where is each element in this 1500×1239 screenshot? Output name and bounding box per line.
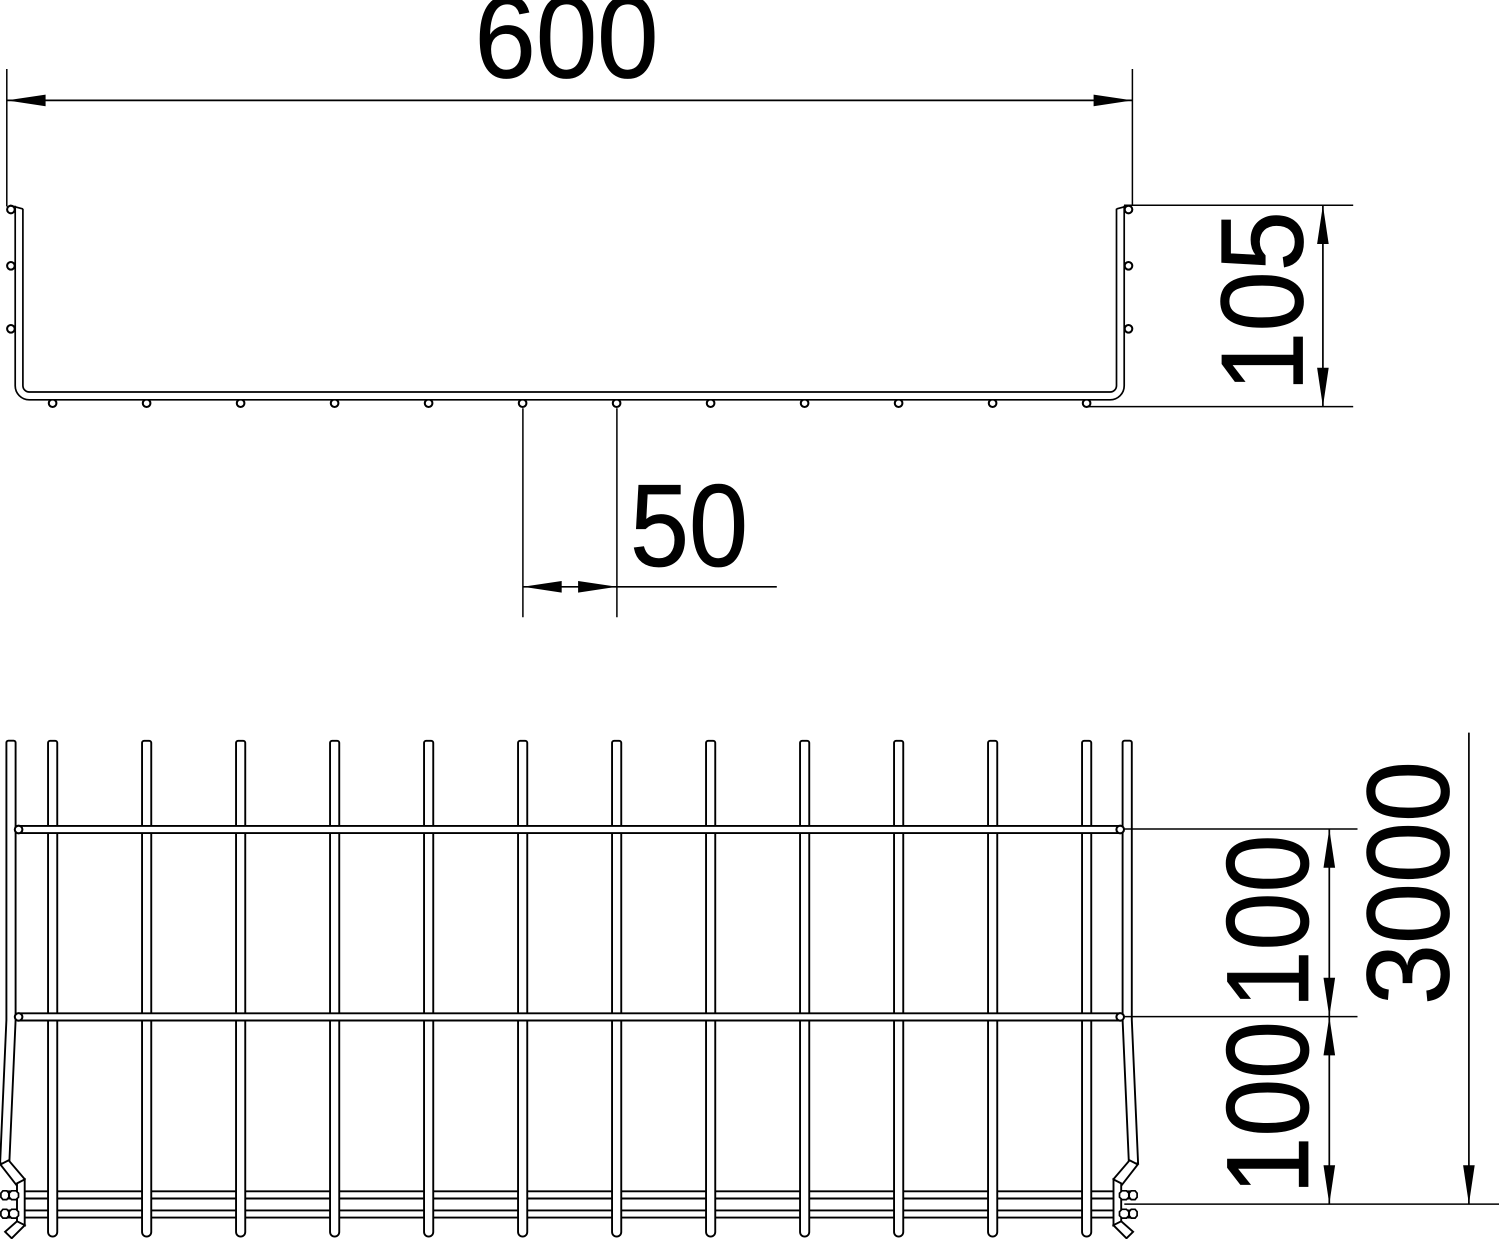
svg-text:100: 100 (1202, 1021, 1333, 1195)
svg-text:50: 50 (630, 460, 748, 591)
svg-text:105: 105 (1197, 211, 1328, 392)
svg-text:100: 100 (1202, 835, 1333, 1009)
svg-text:3000: 3000 (1343, 761, 1474, 1005)
svg-text:600: 600 (475, 0, 659, 103)
